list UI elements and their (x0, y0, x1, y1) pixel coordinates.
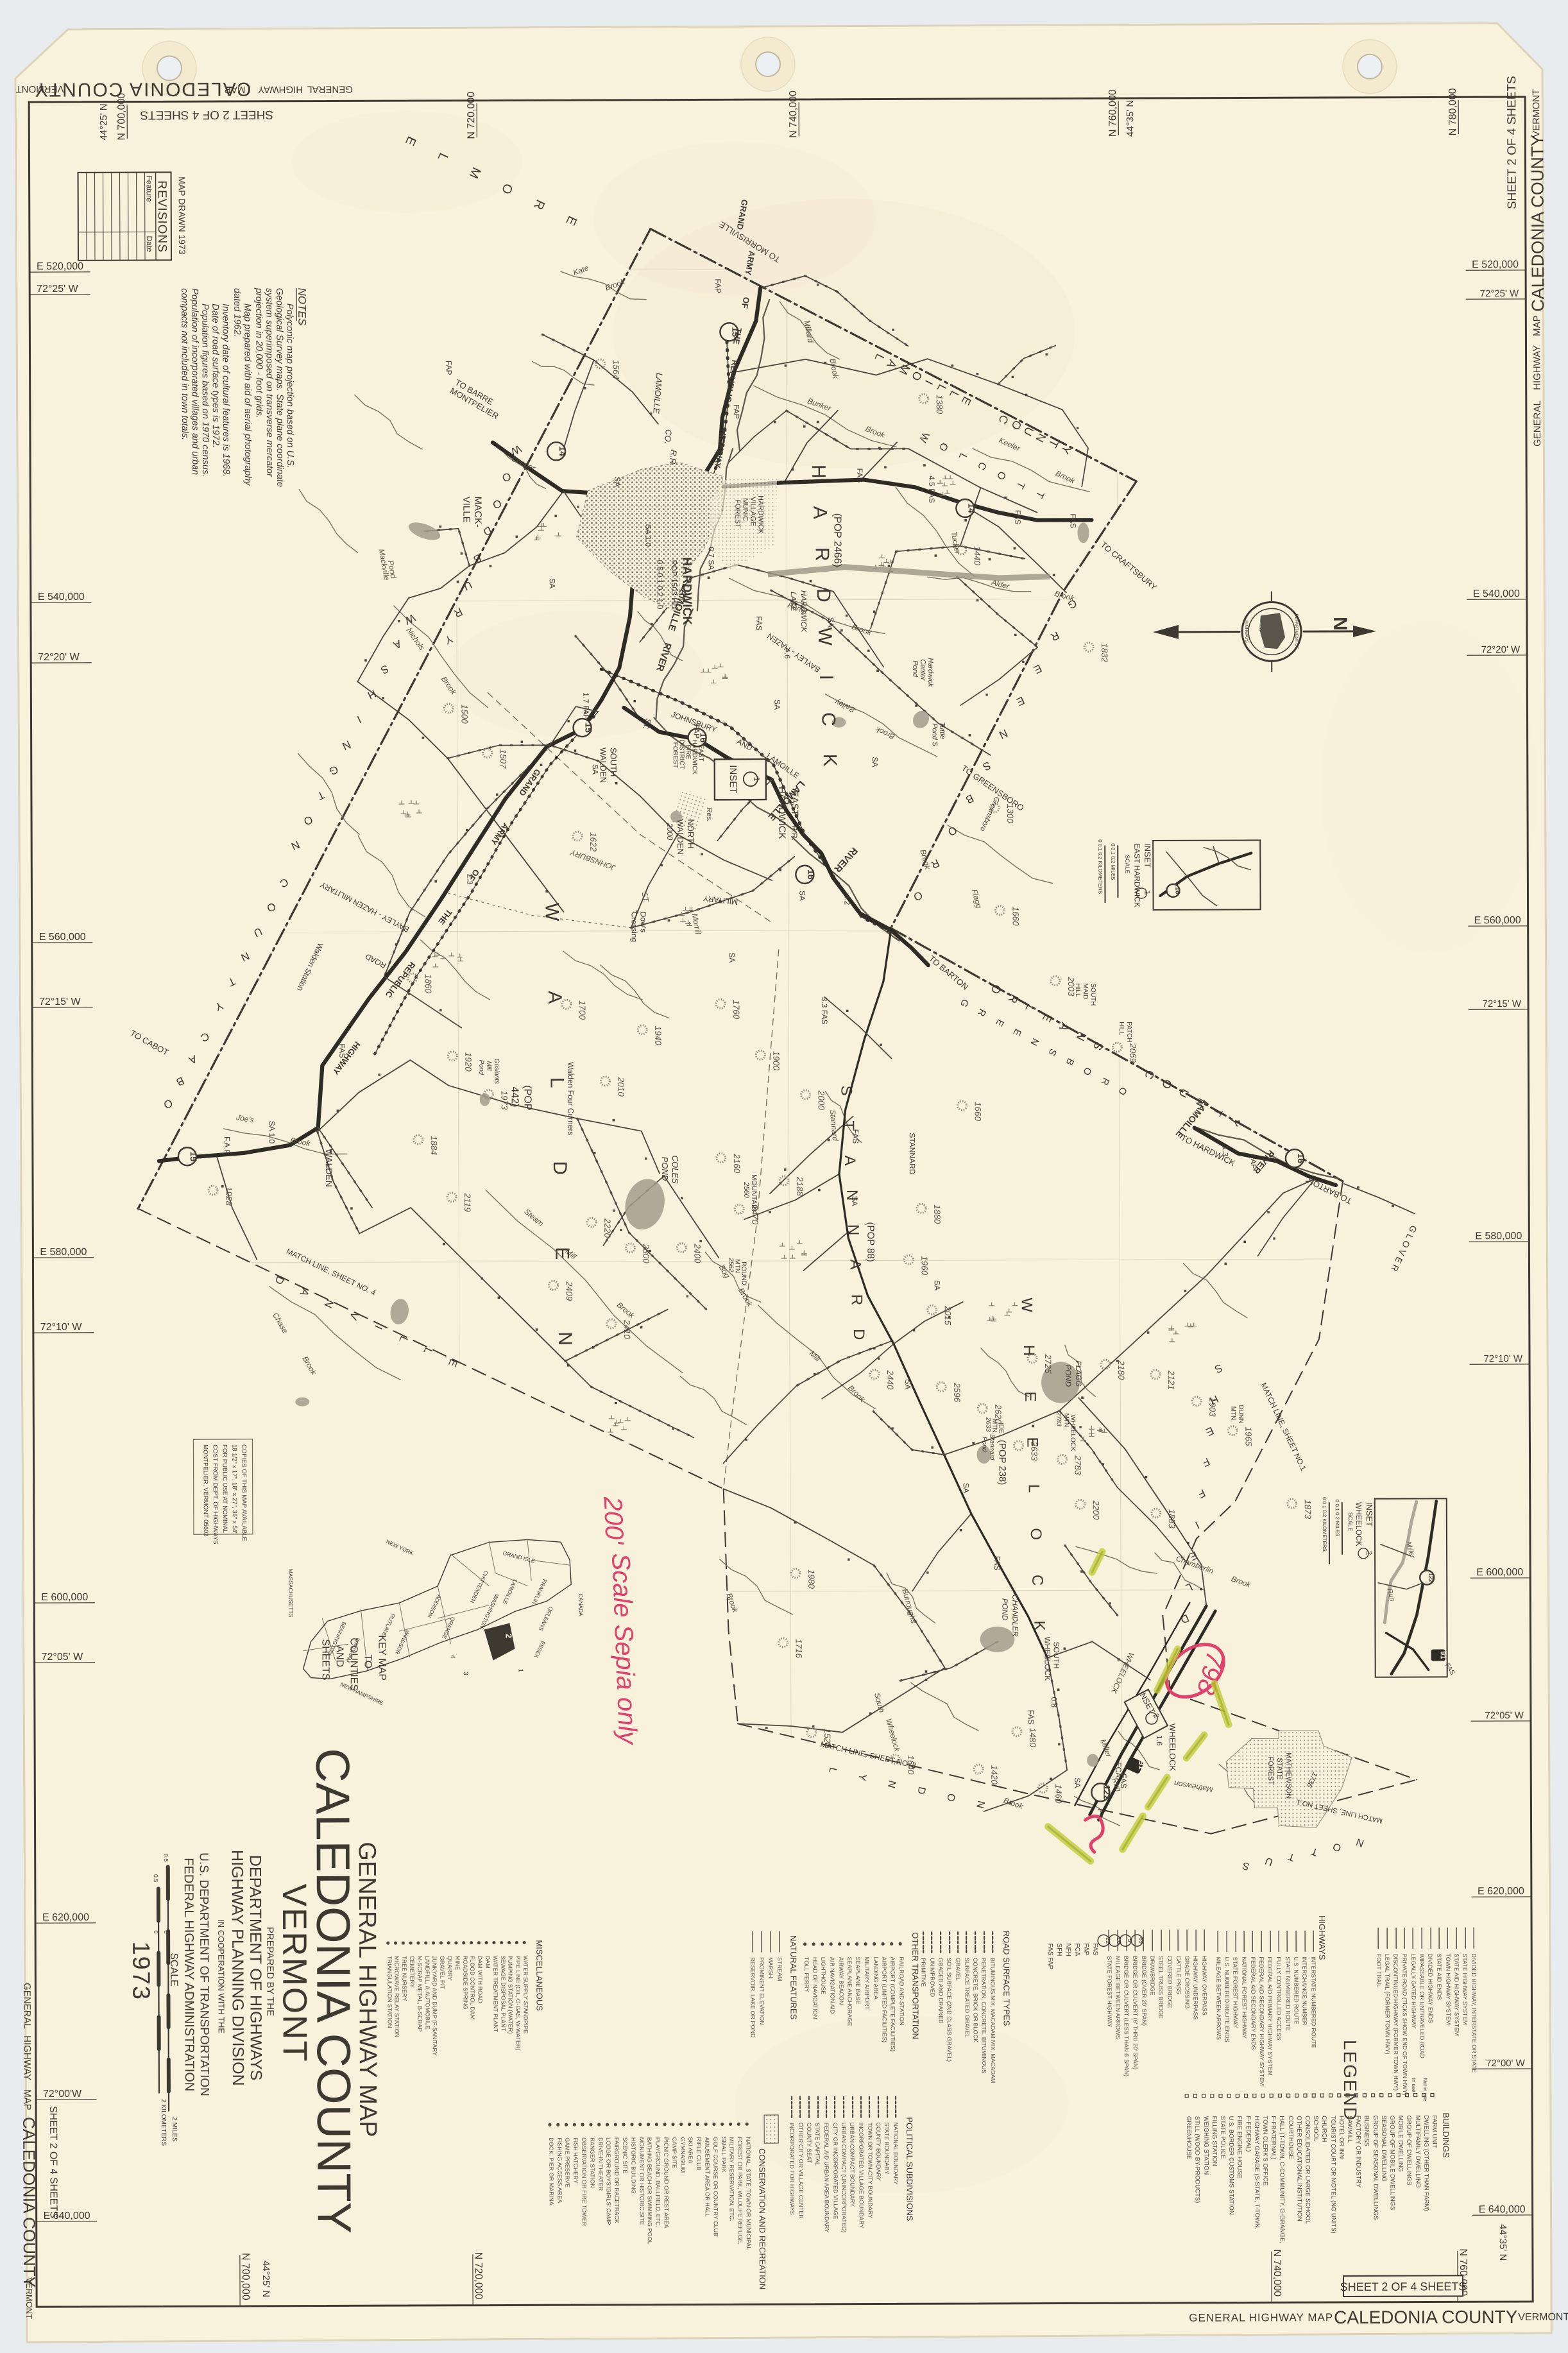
svg-text:2180: 2180 (1116, 1360, 1126, 1380)
svg-text:HIGHWAY OVERPASS: HIGHWAY OVERPASS (1201, 1956, 1207, 2015)
svg-text:MILITARY AIRPORT: MILITARY AIRPORT (864, 1957, 870, 2010)
svg-text:WALDEN: WALDEN (676, 819, 685, 855)
svg-text:SHEET 2 OF 4 SHEETS: SHEET 2 OF 4 SHEETS (47, 2106, 59, 2218)
svg-text:Population figures based on 19: Population figures based on 1970 census. (200, 304, 210, 477)
svg-text:LEGALLY GATED HIGHWAY: LEGALLY GATED HIGHWAY (1410, 1954, 1417, 2029)
svg-text:FIRE ENGINE HOUSE: FIRE ENGINE HOUSE (1236, 2116, 1243, 2178)
svg-text:OTHER TRANSPORTATION: OTHER TRANSPORTATION (910, 1932, 921, 2039)
svg-text:72°25' W: 72°25' W (37, 284, 79, 295)
svg-text:COPIES OF THIS MAP AVAILABLE: COPIES OF THIS MAP AVAILABLE (240, 1444, 248, 1541)
svg-text:72°20' W: 72°20' W (1481, 644, 1521, 655)
svg-text:STATE: STATE (1275, 1758, 1283, 1779)
svg-text:TREE NURSERY: TREE NURSERY (401, 1956, 407, 2001)
svg-text:dated 1962.: dated 1962. (232, 288, 242, 338)
svg-text:HIGHWAY: HIGHWAY (258, 84, 303, 95)
svg-text:E 620,000: E 620,000 (1478, 1886, 1524, 1897)
svg-text:HISTORIC BUILDING: HISTORIC BUILDING (630, 2137, 636, 2194)
svg-text:15: 15 (189, 1151, 199, 1161)
svg-text:72°10' W: 72°10' W (1483, 1353, 1522, 1364)
svg-text:1: 1 (1143, 891, 1152, 895)
svg-text:FOOT TRAIL: FOOT TRAIL (1376, 1954, 1382, 1988)
svg-text:D: D (850, 1329, 867, 1340)
svg-text:PIPE LINE (OIL, G-GAS, W-WATER: PIPE LINE (OIL, G-GAS, W-WATER) (515, 1955, 522, 2050)
svg-text:In use: In use (1411, 2078, 1417, 2092)
svg-text:2: 2 (1365, 1551, 1374, 1555)
svg-text:4.5 FAS: 4.5 FAS (927, 475, 936, 503)
svg-text:N 720,000: N 720,000 (473, 2252, 484, 2300)
svg-text:SHEET 2 OF 4 SHEETS: SHEET 2 OF 4 SHEETS (1340, 2280, 1467, 2293)
svg-text:WALDEN: WALDEN (599, 748, 608, 783)
svg-text:14: 14 (966, 503, 976, 513)
svg-text:0.5: 0.5 (163, 1854, 169, 1862)
svg-text:COLES: COLES (670, 1156, 680, 1184)
svg-text:HIGHWAY: HIGHWAY (1531, 345, 1542, 390)
svg-text:A: A (846, 1260, 864, 1270)
svg-text:2783: 2783 (1055, 1411, 1062, 1426)
svg-text:VERMONT: VERMONT (1256, 618, 1261, 644)
svg-text:D: D (549, 1161, 570, 1175)
svg-text:K: K (1030, 1621, 1048, 1631)
svg-text:L: L (546, 1077, 567, 1088)
svg-text:SEAPLANE ANCHORAGE: SEAPLANE ANCHORAGE (846, 1957, 853, 2026)
svg-text:PATCH: PATCH (1125, 1022, 1132, 1042)
svg-text:MAP DRAWN 1973: MAP DRAWN 1973 (177, 176, 187, 255)
svg-text:1960: 1960 (919, 1256, 929, 1276)
svg-text:44°35' N: 44°35' N (1497, 2224, 1508, 2261)
svg-text:N 720,000: N 720,000 (466, 92, 477, 139)
svg-text:FAP: FAP (692, 724, 701, 739)
svg-text:CEMETERY: CEMETERY (409, 1956, 415, 1988)
svg-text:TRIANGULATION STATION: TRIANGULATION STATION (386, 1956, 393, 2028)
svg-text:MISCELLANEOUS: MISCELLANEOUS (534, 1940, 544, 2011)
svg-text:QUARRY: QUARRY (447, 1956, 453, 1980)
svg-text:1: 1 (517, 1669, 524, 1673)
svg-text:1940: 1940 (653, 1026, 663, 1046)
svg-text:FAIRGROUND OR RACETRACK: FAIRGROUND OR RACETRACK (613, 2137, 620, 2223)
svg-text:SA 1.0: SA 1.0 (643, 524, 652, 547)
svg-text:1873: 1873 (1303, 1500, 1313, 1519)
svg-text:2015: 2015 (943, 1305, 953, 1326)
svg-text:BRIDGE (OVER 20' SPAN): BRIDGE (OVER 20' SPAN) (1141, 1956, 1147, 2026)
svg-text:D: D (813, 588, 834, 603)
svg-text:2.3: 2.3 (465, 874, 474, 885)
svg-text:2188: 2188 (795, 1176, 805, 1197)
svg-text:AIRWAY BEACON: AIRWAY BEACON (838, 1957, 844, 2005)
svg-text:SEAPLANE BASE: SEAPLANE BASE (855, 1957, 861, 2005)
svg-text:HARDWICK: HARDWICK (680, 557, 694, 625)
svg-text:N: N (1329, 617, 1351, 631)
svg-text:BITUMINOUS MIX, MACADAM MIX, M: BITUMINOUS MIX, MACADAM MIX, MACADAM (989, 1958, 996, 2083)
svg-text:I: I (815, 675, 837, 680)
svg-text:NFH: NFH (1064, 1943, 1071, 1956)
svg-text:MINE: MINE (454, 1956, 461, 1971)
svg-text:1973: 1973 (127, 1941, 154, 2001)
svg-text:CANADA: CANADA (577, 1593, 584, 1616)
svg-text:TOWN CLERK'S OFFICE: TOWN CLERK'S OFFICE (1261, 2116, 1268, 2186)
svg-text:0.5: 0.5 (153, 1874, 159, 1883)
svg-text:0 0.1 0.2 KILOMETERS: 0 0.1 0.2 KILOMETERS (1097, 839, 1103, 894)
svg-text:Map prepared with aid of aeria: Map prepared with aid of aerial photogra… (242, 304, 253, 486)
svg-text:TOWN OR TOWN-CITY BOUNDARY: TOWN OR TOWN-CITY BOUNDARY (867, 2123, 874, 2219)
svg-text:MTN.: MTN. (1229, 1407, 1236, 1422)
svg-text:F-FRATERNAL): F-FRATERNAL) (1270, 2116, 1277, 2159)
svg-text:0.8: 0.8 (1050, 1697, 1059, 1708)
svg-text:FAS FAP: FAS FAP (1046, 1944, 1053, 1970)
svg-text:1660: 1660 (973, 1102, 983, 1122)
svg-text:N: N (554, 1331, 575, 1346)
svg-text:AMUSEMENT AREA OR HALL: AMUSEMENT AREA OR HALL (704, 2137, 710, 2216)
svg-text:COUNTY SEAT: COUNTY SEAT (806, 2123, 812, 2164)
svg-text:1380: 1380 (935, 395, 944, 415)
svg-text:2 MILES: 2 MILES (171, 2117, 178, 2142)
svg-text:2783: 2783 (1073, 1455, 1083, 1475)
svg-text:SA: SA (797, 891, 806, 901)
svg-text:1965: 1965 (1243, 1426, 1253, 1446)
svg-text:FAP: FAP (1249, 1154, 1258, 1169)
svg-text:DUNN: DUNN (1237, 1405, 1244, 1423)
svg-text:REVISIONS: REVISIONS (155, 180, 169, 253)
svg-text:FISH HATCHERY: FISH HATCHERY (572, 2137, 579, 2184)
svg-text:U.S. DEPARTMENT OF TRANSPORT: U.S. DEPARTMENT OF TRANSPORTATION (197, 1852, 211, 2096)
svg-text:(POP 88): (POP 88) (865, 1222, 876, 1262)
svg-text:INCORPORATED FOR HIGHWAYS: INCORPORATED FOR HIGHWAYS (788, 2123, 796, 2215)
svg-text:MILEAGE BETWEEN ARROWS: MILEAGE BETWEEN ARROWS (1114, 1956, 1121, 2039)
svg-text:Stannard: Stannard (988, 1434, 995, 1460)
svg-text:ROAD SURFACE TYPES: ROAD SURFACE TYPES (1001, 1931, 1012, 2026)
svg-text:U.S. NUMBERED ROUTE ENDS: U.S. NUMBERED ROUTE ENDS (1223, 1957, 1230, 2042)
svg-text:VERMONT: VERMONT (24, 2277, 34, 2319)
svg-text:U.S. BORDER CUSTOMS STATION: U.S. BORDER CUSTOMS STATION (1227, 2116, 1235, 2215)
svg-text:NORTH: NORTH (686, 819, 695, 848)
svg-text:A: A (841, 1156, 858, 1166)
svg-text:1980: 1980 (806, 1570, 816, 1589)
svg-text:FAS: FAS (1027, 1710, 1035, 1725)
svg-text:W: W (541, 903, 563, 921)
svg-text:STANNARD: STANNARD (908, 1133, 917, 1174)
svg-text:STEEL TRUSS BRIDGE: STEEL TRUSS BRIDGE (1157, 1956, 1164, 2019)
svg-text:MAID: MAID (1082, 983, 1089, 999)
svg-text:URBAN COMPACT BOUNDARY: URBAN COMPACT BOUNDARY (849, 2123, 855, 2207)
svg-text:1716: 1716 (794, 1639, 804, 1659)
svg-text:COVERED BRIDGE: COVERED BRIDGE (1166, 1956, 1173, 2008)
svg-text:72°15' W: 72°15' W (1482, 998, 1521, 1009)
svg-text:E 540,000: E 540,000 (1473, 588, 1520, 599)
svg-text:Pond: Pond (477, 1060, 484, 1075)
svg-text:FEDERAL HIGHWAY ADMINISTRATI: FEDERAL HIGHWAY ADMINISTRATION (182, 1858, 196, 2091)
svg-text:442): 442) (509, 1086, 520, 1107)
svg-text:E 580,000: E 580,000 (1475, 1231, 1522, 1242)
svg-text:91: 91 (1137, 1761, 1146, 1770)
svg-text:FOREST: FOREST (1266, 1756, 1274, 1785)
svg-text:1880: 1880 (932, 1204, 942, 1224)
svg-text:A: A (544, 991, 565, 1004)
svg-text:SA: SA (591, 764, 600, 774)
svg-text:FAP: FAP (1082, 1943, 1089, 1955)
svg-text:1507: 1507 (499, 749, 508, 769)
svg-text:2440: 2440 (885, 1369, 895, 1390)
svg-text:DIVIDED HIGHWAY ENDS: DIVIDED HIGHWAY ENDS (1427, 1953, 1433, 2023)
svg-text:INSET: INSET (1365, 1502, 1374, 1527)
svg-text:COST FROM DEPT. OF HIGHWAYS: COST FROM DEPT. OF HIGHWAYS (211, 1444, 219, 1544)
svg-text:N: N (844, 1224, 862, 1235)
svg-text:DWELLING (OTHER THAN FARM): DWELLING (OTHER THAN FARM) (1422, 2115, 1430, 2211)
svg-text:OTHER EDUCATIONAL INSTITUTION: OTHER EDUCATIONAL INSTITUTION (1295, 2116, 1303, 2221)
svg-text:FCA: FCA (1073, 1943, 1080, 1956)
svg-text:RIFLE CLUB: RIFLE CLUB (695, 2137, 702, 2170)
svg-text:(POP: (POP (522, 1085, 533, 1110)
svg-text:DOCK, PIER OR MARINA: DOCK, PIER OR MARINA (548, 2137, 554, 2205)
svg-text:TO: TO (362, 1654, 373, 1668)
svg-text:14: 14 (558, 446, 568, 456)
svg-text:N 740,000: N 740,000 (788, 90, 799, 138)
svg-text:Date: Date (145, 235, 154, 252)
svg-text:(POP 2466): (POP 2466) (831, 513, 842, 567)
svg-text:VILLAGE: VILLAGE (749, 497, 756, 526)
svg-text:122: 122 (1427, 1573, 1434, 1582)
svg-text:TOLL FERRY: TOLL FERRY (803, 1957, 810, 1992)
svg-text:2725: 2725 (1043, 1354, 1053, 1374)
svg-text:STATE POLICE: STATE POLICE (1219, 2116, 1226, 2159)
svg-text:PLAYGROUND, BALLFIELD, ETC.: PLAYGROUND, BALLFIELD, ETC. (654, 2137, 661, 2227)
svg-text:2: 2 (504, 1634, 513, 1638)
svg-text:SCALE: SCALE (1124, 855, 1130, 874)
svg-text:1480: 1480 (1028, 1728, 1037, 1748)
svg-text:0.7 SA: 0.7 SA (707, 547, 716, 570)
svg-text:POLITICAL SUBDIVISIONS: POLITICAL SUBDIVISIONS (905, 2117, 915, 2221)
svg-text:1760: 1760 (731, 1000, 741, 1020)
svg-text:SEASONAL DWELLING: SEASONAL DWELLING (1380, 2116, 1387, 2182)
svg-text:H: H (808, 465, 829, 479)
svg-text:GOLF COURSE OR COUNTRY CLUB: GOLF COURSE OR COUNTRY CLUB (712, 2137, 719, 2236)
svg-text:GRADED AND DRAINED: GRADED AND DRAINED (937, 1958, 944, 2024)
svg-text:SHEET 2 OF 4 SHEETS: SHEET 2 OF 4 SHEETS (1505, 76, 1519, 209)
svg-text:OF: OF (740, 296, 751, 309)
svg-text:VERMONT: VERMONT (1518, 2312, 1568, 2323)
svg-text:CALEDONIA COUNTY: CALEDONIA COUNTY (1528, 135, 1547, 312)
svg-text:72°25' W: 72°25' W (1480, 288, 1519, 299)
svg-text:COUNTY BOUNDARY: COUNTY BOUNDARY (875, 2122, 882, 2180)
svg-text:F-FEDERAL): F-FEDERAL) (1245, 2116, 1252, 2152)
svg-text:INSET: INSET (728, 765, 738, 793)
svg-text:CALEDONIA COUNTY: CALEDONIA COUNTY (19, 2117, 39, 2288)
svg-text:E 560,000: E 560,000 (39, 932, 86, 943)
svg-text:MUNIC.: MUNIC. (741, 498, 749, 523)
svg-text:LEGAL TRAIL (FORMER TOWN HWY): LEGAL TRAIL (FORMER TOWN HWY) (1384, 1954, 1391, 2055)
svg-text:2069: 2069 (1128, 1043, 1138, 1063)
svg-text:E 580,000: E 580,000 (40, 1247, 87, 1258)
svg-text:POP 1503 HD: POP 1503 HD (670, 560, 679, 609)
svg-text:1883: 1883 (1167, 1509, 1177, 1529)
svg-text:S: S (838, 1086, 855, 1096)
svg-text:AND: AND (334, 1645, 345, 1667)
svg-text:VERMONT: VERMONT (275, 1884, 314, 2063)
svg-text:FAP: FAP (713, 278, 722, 293)
svg-text:INTERCHANGE NUMBER: INTERCHANGE NUMBER (1301, 1956, 1308, 2026)
svg-text:HIGHWAYS: HIGHWAYS (1317, 1915, 1327, 1960)
svg-text:SA: SA (548, 578, 557, 588)
svg-text:VERMONT: VERMONT (1531, 89, 1542, 137)
svg-text:1660: 1660 (1011, 907, 1021, 927)
svg-text:HIGHWAY GARAGE (S-STATE, T-TOW: HIGHWAY GARAGE (S-STATE, T-TOWN, (1253, 2116, 1261, 2229)
svg-text:E 520,000: E 520,000 (1472, 259, 1519, 270)
svg-text:KEY MAP: KEY MAP (376, 1635, 387, 1681)
svg-text:HARDWICK: HARDWICK (776, 787, 787, 839)
svg-text:CALEDONIA COUNTY: CALEDONIA COUNTY (34, 78, 251, 100)
svg-text:AIR NAVIGATION AID: AIR NAVIGATION AID (829, 1957, 835, 2014)
svg-text:PROMINENT ELEVATION: PROMINENT ELEVATION (758, 1957, 765, 2025)
svg-text:VILLE: VILLE (461, 497, 472, 523)
svg-text:2000: 2000 (665, 823, 674, 841)
svg-text:E: E (1023, 1437, 1041, 1448)
svg-text:CALEDONIA COUNTY: CALEDONIA COUNTY (1334, 2307, 1518, 2327)
svg-text:SHEET 2 OF 4 SHEETS: SHEET 2 OF 4 SHEETS (140, 108, 273, 122)
svg-text:PENETRATION, CONCRETE, BITUMIN: PENETRATION, CONCRETE, BITUMINOUS (980, 1958, 987, 2073)
svg-text:SCENIC SITE: SCENIC SITE (622, 2137, 628, 2174)
svg-text:O: O (1027, 1528, 1044, 1540)
svg-text:2220: 2220 (602, 1218, 612, 1238)
svg-text:DIVIDED HIGHWAY, INTERSTATE OR: DIVIDED HIGHWAY, INTERSTATE OR STATE (1470, 1953, 1478, 2073)
svg-text:W: W (814, 628, 835, 646)
svg-text:STATE NUMBERED ROUTE: STATE NUMBERED ROUTE (1284, 1956, 1291, 2031)
svg-text:SA: SA (903, 1379, 912, 1389)
svg-text:1.3: 1.3 (1221, 1146, 1230, 1157)
svg-text:DEPARTMENT OF HIGHWAYS: DEPARTMENT OF HIGHWAYS (246, 1855, 265, 2081)
svg-text:E 600,000: E 600,000 (1476, 1567, 1523, 1578)
svg-text:22: 22 (1105, 1937, 1111, 1944)
svg-text:1900: 1900 (771, 1051, 781, 1071)
svg-text:MILITARY RESERVATION, ETC.: MILITARY RESERVATION, ETC. (728, 2137, 735, 2221)
svg-text:POND: POND (1000, 1598, 1009, 1621)
svg-text:FAP: FAP (732, 404, 741, 419)
svg-text:1860: 1860 (423, 974, 433, 994)
svg-text:HILL: HILL (1118, 1022, 1125, 1036)
svg-text:LANDING AREA: LANDING AREA (873, 1956, 879, 1999)
svg-text:WHEELOCK: WHEELOCK (1354, 1502, 1363, 1546)
svg-text:72°05' W: 72°05' W (42, 1652, 84, 1663)
svg-text:SA: SA (728, 952, 737, 963)
svg-text:HARDWICK: HARDWICK (756, 495, 764, 535)
svg-text:EAST HARDWICK: EAST HARDWICK (1132, 843, 1141, 907)
svg-text:FAP: FAP (445, 361, 454, 375)
svg-text:NOTES: NOTES (296, 288, 308, 326)
svg-text:STREAM: STREAM (776, 1957, 783, 1981)
svg-text:LEGEND: LEGEND (1340, 2040, 1360, 2121)
svg-text:MAP: MAP (22, 2089, 33, 2110)
svg-text:HOTEL OR INN: HOTEL OR INN (1338, 2116, 1345, 2159)
svg-text:91: 91 (1439, 1651, 1447, 1659)
svg-text:GENERAL: GENERAL (21, 1983, 32, 2029)
svg-text:MAP: MAP (225, 84, 246, 95)
svg-text:projection in 20,000 - foot gr: projection in 20,000 - foot grids. (253, 287, 264, 418)
svg-text:0 0.1 0.2 MILES: 0 0.1 0.2 MILES (1334, 1500, 1340, 1536)
svg-text:DAM: DAM (484, 1956, 491, 1969)
svg-text:122: 122 (1102, 1785, 1112, 1801)
svg-text:FACTORY OR INDUSTRY: FACTORY OR INDUSTRY (1354, 2116, 1361, 2188)
svg-text:L: L (1025, 1484, 1043, 1493)
svg-text:STATE AID ENDS: STATE AID ENDS (1436, 1953, 1442, 1999)
svg-text:Walden Four Corners: Walden Four Corners (566, 1062, 575, 1135)
svg-text:0: 0 (153, 1930, 159, 1933)
svg-text:WEIGHING STATION: WEIGHING STATION (1202, 2116, 1209, 2175)
svg-text:DRAWBRIDGE: DRAWBRIDGE (1149, 1956, 1155, 1996)
svg-text:GENERAL: GENERAL (307, 83, 353, 94)
svg-text:FAS: FAS (993, 1556, 1001, 1571)
svg-text:M-SCRAP METAL, B-SCRAP: M-SCRAP METAL, B-SCRAP (416, 1956, 423, 2032)
svg-text:GROUP OF MOBILE DWELLINGS: GROUP OF MOBILE DWELLINGS (1388, 2116, 1396, 2211)
svg-text:16: 16 (1296, 1153, 1306, 1163)
svg-text:UNIMPROVED: UNIMPROVED (929, 1958, 935, 1998)
svg-text:1: 1 (752, 777, 762, 782)
svg-text:MICROWAVE RELAY STATION: MICROWAVE RELAY STATION (393, 1956, 400, 2037)
svg-text:MATHEWSON: MATHEWSON (1284, 1752, 1292, 1799)
svg-text:RANGER STATION: RANGER STATION (589, 2137, 595, 2188)
svg-text:FOR PUBLIC USE AT NOMINAL: FOR PUBLIC USE AT NOMINAL (221, 1444, 228, 1534)
svg-text:Crossing: Crossing (630, 912, 639, 942)
svg-text:Pond: Pond (911, 660, 919, 678)
svg-text:HIGHWAY: HIGHWAY (22, 2035, 33, 2080)
svg-text:Population of incorporated vil: Population of incorporated villages and … (189, 288, 200, 475)
svg-text:E 600,000: E 600,000 (41, 1592, 88, 1603)
svg-text:W: W (1018, 1297, 1035, 1312)
svg-text:MACK-: MACK- (472, 497, 483, 527)
svg-text:MOUNTAIN: MOUNTAIN (750, 1174, 758, 1211)
svg-text:72°00'W: 72°00'W (43, 2089, 82, 2100)
svg-text:BATHING BEACH OR SWIMMING POOL: BATHING BEACH OR SWIMMING POOL (646, 2137, 653, 2245)
svg-text:GENERAL: GENERAL (1532, 400, 1543, 447)
svg-text:PRIMITIVE: PRIMITIVE (920, 1958, 926, 1987)
svg-text:SHEETS: SHEETS (320, 1639, 331, 1680)
svg-text:POND: POND (660, 1157, 670, 1181)
svg-text:GROUP OF SEASONAL DWELLINGS: GROUP OF SEASONAL DWELLINGS (1372, 2116, 1379, 2220)
svg-text:E: E (1021, 1392, 1039, 1402)
svg-text:NATURAL FEATURES: NATURAL FEATURES (788, 1935, 798, 2020)
svg-text:72°05' W: 72°05' W (1485, 1710, 1524, 1721)
svg-text:NATIONAL FOREST HIGHWAY: NATIONAL FOREST HIGHWAY (1241, 1956, 1247, 2038)
svg-text:BRIDGE OR CULVERT (6' THRU 20': BRIDGE OR CULVERT (6' THRU 20' SPAN) (1132, 1956, 1139, 2069)
svg-text:LIGHTHOUSE: LIGHTHOUSE (820, 1957, 826, 1995)
svg-text:GENERAL HIGHWAY MAP: GENERAL HIGHWAY MAP (1189, 2311, 1333, 2324)
svg-text:WHEELOCK: WHEELOCK (1043, 1637, 1052, 1681)
svg-text:SA: SA (850, 1196, 859, 1206)
svg-text:MASSACHUSETTS: MASSACHUSETTS (287, 1569, 294, 1618)
svg-text:FAS: FAS (855, 468, 864, 483)
svg-text:SCALE: SCALE (1347, 1512, 1354, 1532)
svg-text:FAS: FAS (851, 1129, 860, 1144)
svg-text:SURFACE TREATED GRAVEL: SURFACE TREATED GRAVEL (964, 1958, 970, 2038)
svg-text:RAILROAD AND STATION: RAILROAD AND STATION (898, 1956, 905, 2025)
svg-text:A: A (809, 506, 830, 519)
svg-text:72°00' W: 72°00' W (1486, 2058, 1525, 2069)
svg-text:SA: SA (933, 1280, 942, 1290)
svg-text:GRAVEL PIT: GRAVEL PIT (439, 1956, 445, 1990)
svg-text:IMPASSABLE OR UNTRAVELED ROAD: IMPASSABLE OR UNTRAVELED ROAD (1419, 1954, 1426, 2059)
svg-text:SA: SA (1073, 1777, 1082, 1788)
svg-text:200': 200' (599, 1496, 629, 1546)
svg-text:1440: 1440 (973, 546, 982, 566)
svg-text:HILL: HILL (1074, 983, 1081, 997)
svg-text:R.R.: R.R. (668, 449, 679, 466)
svg-text:2 KILOMETERS: 2 KILOMETERS (160, 2099, 167, 2146)
svg-text:1.6: 1.6 (1155, 1735, 1164, 1746)
svg-text:E 560,000: E 560,000 (1474, 915, 1521, 926)
svg-text:F.A.P.: F.A.P. (223, 1136, 232, 1156)
svg-text:MULTIFAMILY DWELLING: MULTIFAMILY DWELLING (1414, 2116, 1421, 2188)
svg-text:STATE FOREST HIGHWAY: STATE FOREST HIGHWAY (1106, 1956, 1112, 2027)
svg-text:Date of road surface types is: Date of road surface types is 1972. (210, 304, 221, 448)
svg-text:Res.: Res. (705, 807, 713, 822)
svg-text:0: 0 (163, 1930, 169, 1933)
svg-text:R.R.: R.R. (790, 825, 799, 841)
